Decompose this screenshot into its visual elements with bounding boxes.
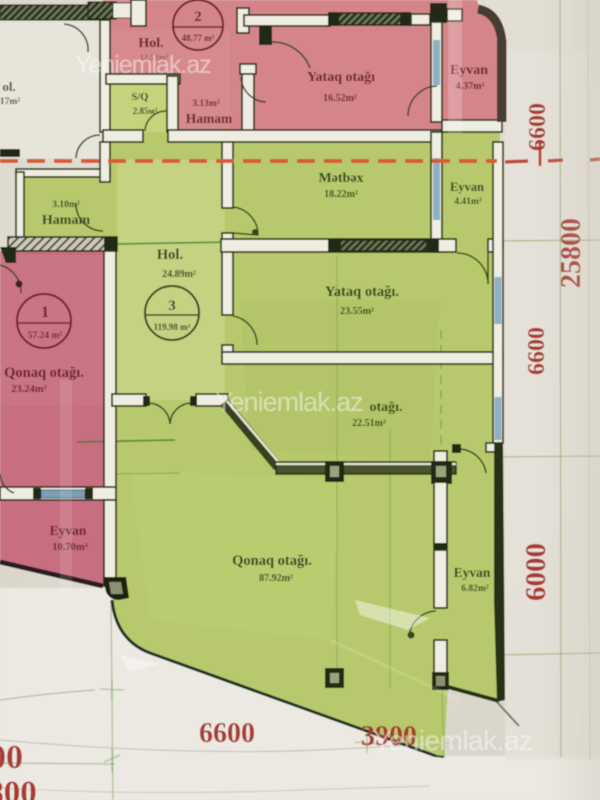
svg-text:24.89m²: 24.89m² bbox=[162, 269, 196, 280]
svg-text:3.13m²: 3.13m² bbox=[192, 99, 220, 109]
svg-text:57.24 m²: 57.24 m² bbox=[28, 331, 63, 341]
svg-text:800: 800 bbox=[0, 775, 37, 800]
svg-text:Hamam: Hamam bbox=[42, 213, 91, 228]
svg-text:00: 00 bbox=[0, 739, 23, 776]
svg-text:Eyvan: Eyvan bbox=[454, 565, 491, 580]
svg-text:6.82m²: 6.82m² bbox=[461, 584, 489, 594]
svg-text:6600: 6600 bbox=[199, 718, 255, 749]
svg-text:Eyvan: Eyvan bbox=[450, 180, 484, 194]
svg-text:Hamam: Hamam bbox=[186, 111, 233, 126]
svg-text:2: 2 bbox=[194, 9, 202, 25]
svg-text:48.77 m²: 48.77 m² bbox=[182, 33, 215, 43]
svg-text:Mətbəx: Mətbəx bbox=[318, 171, 363, 186]
svg-text:23.55m²: 23.55m² bbox=[340, 306, 374, 317]
svg-text:87.92m²: 87.92m² bbox=[259, 573, 293, 584]
svg-text:Qonaq otağı.: Qonaq otağı. bbox=[4, 365, 84, 381]
svg-text:Hol.: Hol. bbox=[157, 247, 183, 263]
svg-text:119.98 m²: 119.98 m² bbox=[154, 322, 191, 332]
svg-text:Yeniemlak.az: Yeniemlak.az bbox=[373, 725, 533, 756]
svg-text:17m²: 17m² bbox=[0, 97, 20, 107]
svg-text:2.85м²: 2.85м² bbox=[133, 106, 158, 116]
svg-text:3.10m²: 3.10m² bbox=[52, 200, 80, 210]
svg-text:otağı.: otağı. bbox=[369, 400, 402, 415]
svg-text:S/Q: S/Q bbox=[132, 92, 149, 103]
svg-text:Yataq otağı.: Yataq otağı. bbox=[325, 284, 399, 300]
svg-text:Yeniemlak.az: Yeniemlak.az bbox=[215, 387, 363, 417]
svg-text:Qonaq otağı.: Qonaq otağı. bbox=[232, 553, 312, 569]
svg-text:ol.: ol. bbox=[2, 79, 15, 94]
svg-text:Yeniemlak.az: Yeniemlak.az bbox=[75, 51, 211, 79]
svg-text:Yataq otağı: Yataq otağı bbox=[307, 70, 375, 85]
svg-text:4.41m²: 4.41m² bbox=[454, 197, 482, 207]
svg-text:22.51m²: 22.51m² bbox=[352, 418, 386, 429]
svg-text:16.52m²: 16.52m² bbox=[323, 93, 357, 104]
svg-text:1: 1 bbox=[41, 304, 49, 321]
svg-text:Hol.: Hol. bbox=[138, 36, 163, 51]
svg-text:18.22m²: 18.22m² bbox=[324, 189, 358, 200]
svg-text:23.24m²: 23.24m² bbox=[11, 384, 47, 395]
svg-text:3: 3 bbox=[168, 298, 176, 314]
